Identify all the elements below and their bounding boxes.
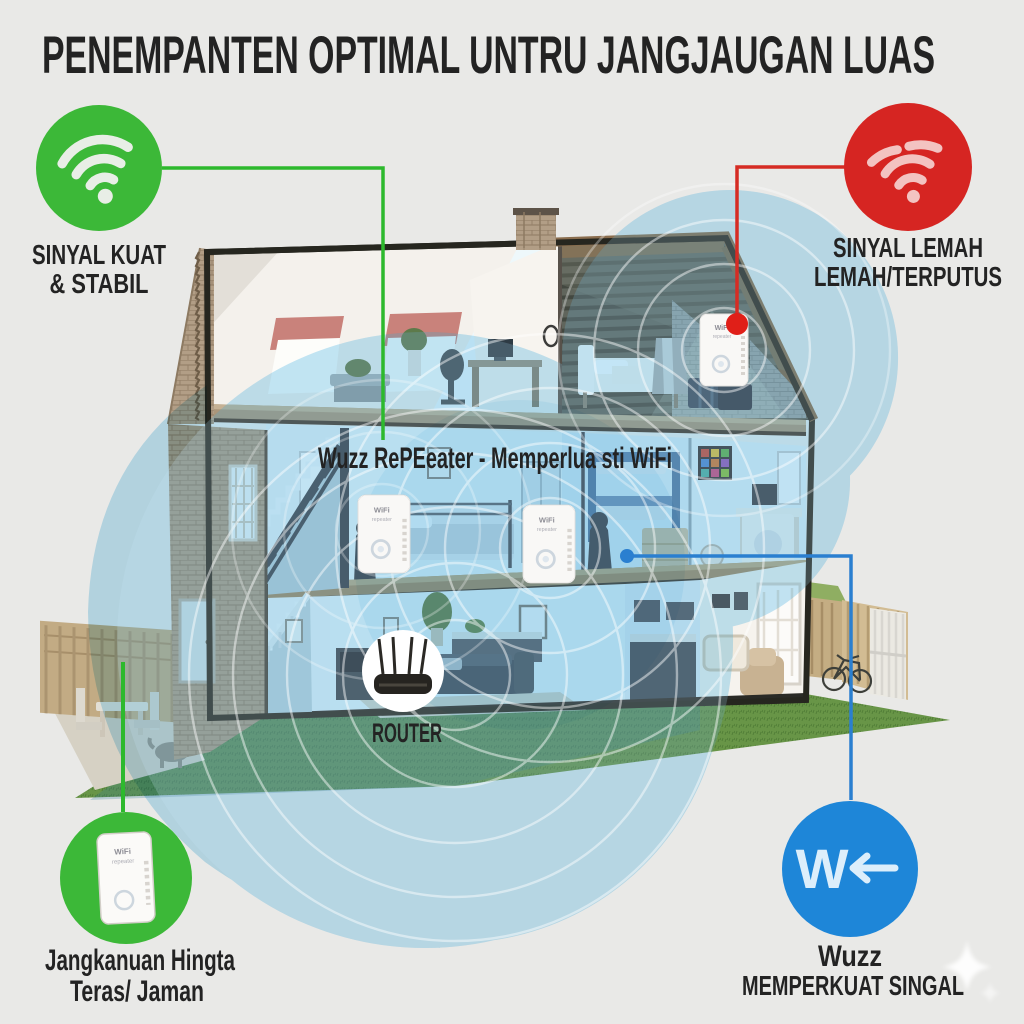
svg-text:Teras/ Jaman: Teras/ Jaman (70, 975, 204, 1008)
svg-text:& STABIL: & STABIL (50, 268, 149, 299)
svg-text:Wuzz RePEeater - Memperlua sti: Wuzz RePEeater - Memperlua sti WiFi (318, 442, 672, 475)
svg-text:LEMAH/TERPUTUS: LEMAH/TERPUTUS (814, 261, 1002, 292)
svg-text:MEMPERKUAT SINGAL: MEMPERKUAT SINGAL (742, 970, 964, 1001)
svg-text:SINYAL KUAT: SINYAL KUAT (32, 239, 166, 270)
svg-text:repeater: repeater (112, 859, 135, 866)
svg-text:W: W (796, 837, 849, 900)
svg-text:SINYAL LEMAH: SINYAL LEMAH (833, 232, 983, 263)
svg-text:ROUTER: ROUTER (372, 718, 442, 748)
svg-text:Wuzz: Wuzz (818, 940, 882, 973)
svg-text:PENEMPANTEN OPTIMAL UNTRU JANG: PENEMPANTEN OPTIMAL UNTRU JANGJAUGAN LUA… (42, 26, 935, 85)
svg-text:WiFi: WiFi (114, 847, 131, 857)
svg-text:Jangkanuan Hingta: Jangkanuan Hingta (45, 944, 235, 977)
